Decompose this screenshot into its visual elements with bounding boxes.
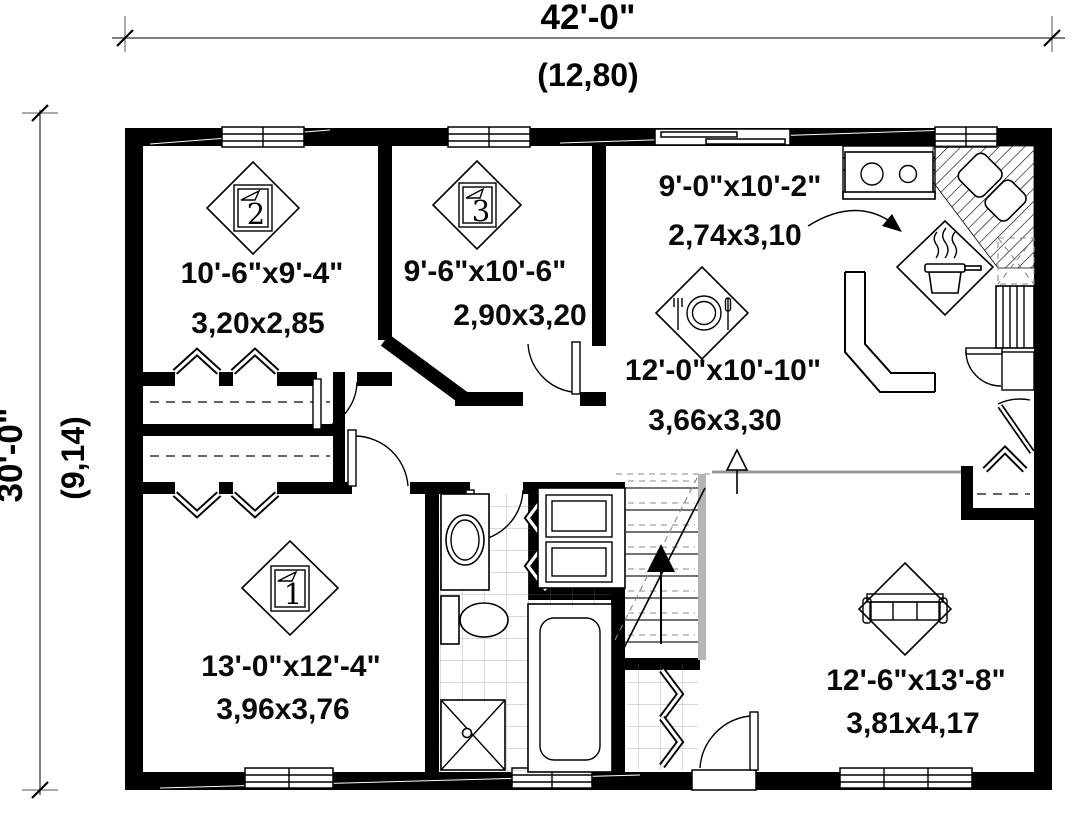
bedroom-1-size-metric: 3,96x3,76: [216, 693, 349, 726]
wall-closet: [143, 372, 175, 386]
window-bedroom3: [448, 127, 530, 147]
living-diamond-icon: [859, 563, 951, 655]
staircase: [615, 450, 747, 660]
wall-stub: [580, 392, 606, 406]
kitchen-callout-arrow: [808, 210, 902, 232]
bifold-living-closet: [985, 450, 1025, 470]
bedroom-1-size-imperial: 13'-0"x12'-4": [201, 650, 381, 683]
bedroom-3-number: 3: [472, 194, 490, 228]
door-bedroom1: [348, 430, 408, 486]
bedroom-2-number: 2: [247, 197, 265, 231]
bedroom-2-size-imperial: 10'-6"x9'-4": [181, 257, 344, 290]
overall-height-metric: (9,14): [55, 416, 91, 500]
dining-size-imperial: 12'-0"x10'-10": [625, 354, 821, 387]
wall-closet: [277, 372, 317, 386]
wall-bath-top: [425, 482, 470, 494]
wall-left: [125, 128, 143, 790]
living-size-metric: 3,81x4,17: [846, 707, 979, 740]
wall-closet: [219, 372, 233, 386]
bedroom-3-size-metric: 2,90x3,20: [453, 299, 586, 332]
bifold-bed2-closet: [233, 352, 277, 372]
stove-cooktop-icon: [843, 152, 935, 199]
dining-room: 12'-0"x10'-10" 3,66x3,30: [625, 267, 821, 437]
window-living: [840, 768, 972, 788]
wall-bed1-top: [277, 482, 352, 494]
bedroom-2: 2 10'-6"x9'-4" 3,20x2,85: [181, 162, 344, 340]
living-room: 12'-6"x13'-8" 3,81x4,17: [826, 563, 1006, 740]
bedroom-1: 1 13'-0"x12'-4" 3,96x3,76: [201, 541, 381, 726]
toilet-bowl-icon: [460, 603, 508, 637]
bedroom-3-size-imperial: 9'-6"x10'-6": [404, 255, 567, 288]
bedroom-2-diamond-icon: 2: [207, 162, 299, 254]
refrigerator-icon: [996, 286, 1034, 348]
door-kitchen-living: [998, 399, 1032, 452]
wall-bed1-right: [425, 482, 439, 772]
wall-right: [1034, 128, 1052, 790]
wall-bed2-bed3: [378, 146, 392, 340]
wall-living-closet-bottom: [961, 508, 1034, 520]
wall-bed1-top: [219, 482, 233, 494]
bedroom-3-diamond-icon: 3: [433, 161, 521, 249]
bifold-bed1-closet: [233, 494, 277, 514]
door-bedroom3: [528, 342, 580, 394]
overall-height-imperial: 30'-0": [0, 408, 30, 503]
shower-drain-icon: [463, 729, 472, 738]
window-kitchen: [935, 127, 997, 147]
wall-bed1-top: [143, 482, 175, 494]
overall-width-metric: (12,80): [537, 57, 638, 93]
wall-bath-right-lower: [611, 600, 625, 772]
door-entry: [692, 712, 758, 790]
bifold-bed1-closet: [175, 494, 219, 514]
kitchen-size-metric: 2,74x3,10: [668, 219, 801, 252]
toilet-tank: [441, 596, 459, 644]
corner-shower: [441, 700, 505, 770]
wall-diagonal-hall: [385, 340, 465, 399]
wall-bed3-bottom: [455, 392, 523, 406]
top-dimension: 42'-0" (12,80): [112, 0, 1065, 93]
dining-size-metric: 3,66x3,30: [648, 404, 781, 437]
wall-closet-right: [333, 372, 345, 494]
bedroom-2-size-metric: 3,20x2,85: [191, 307, 324, 340]
kitchen-size-imperial: 9'-0"x10'-2": [659, 170, 822, 203]
wall-closet: [357, 372, 392, 386]
wall-bed3-right: [592, 146, 606, 346]
bedroom-1-diamond-icon: 1: [242, 541, 338, 635]
floor-plan-page: 42'-0" (12,80) 30'-0" (9,14): [0, 0, 1080, 814]
window-bedroom1: [245, 768, 333, 788]
bedroom-1-number: 1: [284, 577, 302, 611]
pantry-cabinet: [1002, 352, 1034, 390]
bedroom-3: 3 9'-6"x10'-6" 2,90x3,20: [404, 161, 587, 332]
overall-width-imperial: 42'-0": [541, 0, 636, 37]
window-bedroom2: [222, 127, 304, 147]
door-pantry: [966, 348, 1002, 386]
dining-diamond-icon: [656, 267, 748, 359]
floor-plan-canvas: 42'-0" (12,80) 30'-0" (9,14): [0, 0, 1080, 814]
stair-stringer: [698, 474, 706, 660]
living-size-imperial: 12'-6"x13'-8": [826, 664, 1006, 697]
window-sliding-dining: [655, 129, 790, 145]
left-dimension: 30'-0" (9,14): [0, 105, 91, 798]
bifold-bed2-closet: [175, 352, 219, 372]
